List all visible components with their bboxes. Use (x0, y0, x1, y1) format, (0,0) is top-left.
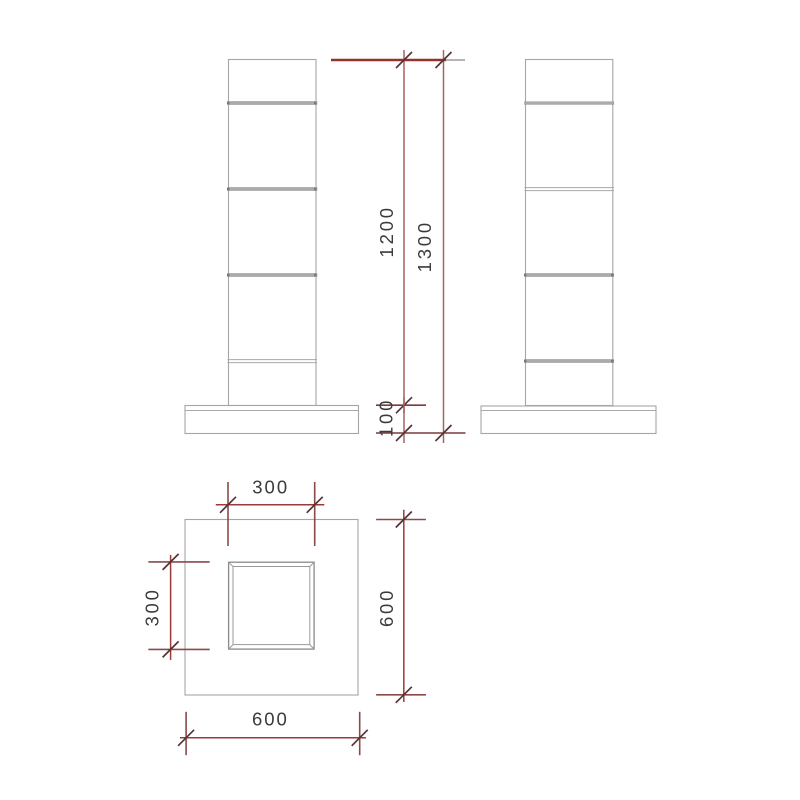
svg-text:100: 100 (376, 398, 397, 437)
svg-text:1300: 1300 (414, 220, 435, 272)
svg-text:600: 600 (252, 708, 289, 729)
svg-text:300: 300 (252, 477, 289, 498)
svg-text:1200: 1200 (376, 205, 397, 257)
svg-text:600: 600 (376, 588, 397, 627)
svg-text:300: 300 (141, 587, 162, 626)
